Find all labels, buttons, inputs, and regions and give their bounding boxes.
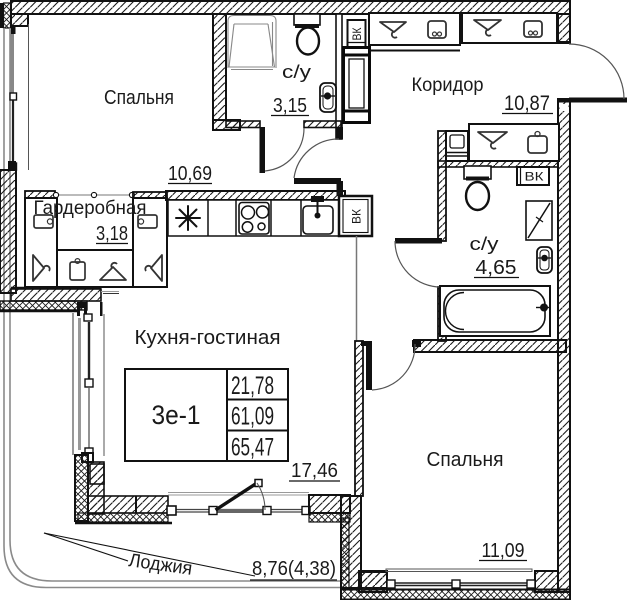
svg-text:11,09: 11,09 [482,539,525,562]
svg-text:Коридор: Коридор [412,74,484,96]
svg-text:21,78: 21,78 [231,372,274,400]
svg-text:4,65: 4,65 [476,256,517,279]
svg-text:ВК: ВК [350,209,364,224]
svg-text:3,15: 3,15 [273,94,307,117]
svg-text:65,47: 65,47 [231,434,274,462]
svg-text:10,87: 10,87 [504,92,550,115]
svg-text:ВК: ВК [352,27,364,40]
svg-text:61,09: 61,09 [231,403,274,431]
svg-text:с/у: с/у [470,234,499,254]
svg-text:3е-1: 3е-1 [152,400,201,430]
svg-text:10,69: 10,69 [168,162,212,185]
svg-text:Гардеробная: Гардеробная [34,198,147,219]
svg-text:8,76(4,38): 8,76(4,38) [252,558,336,580]
svg-text:3,18: 3,18 [96,222,128,245]
svg-text:ВК: ВК [525,170,544,184]
svg-text:с/у: с/у [282,62,311,82]
svg-text:Спальня: Спальня [427,449,504,471]
svg-text:Спальня: Спальня [104,87,174,109]
svg-text:17,46: 17,46 [291,459,338,482]
svg-text:Кухня-гостиная: Кухня-гостиная [135,327,281,349]
